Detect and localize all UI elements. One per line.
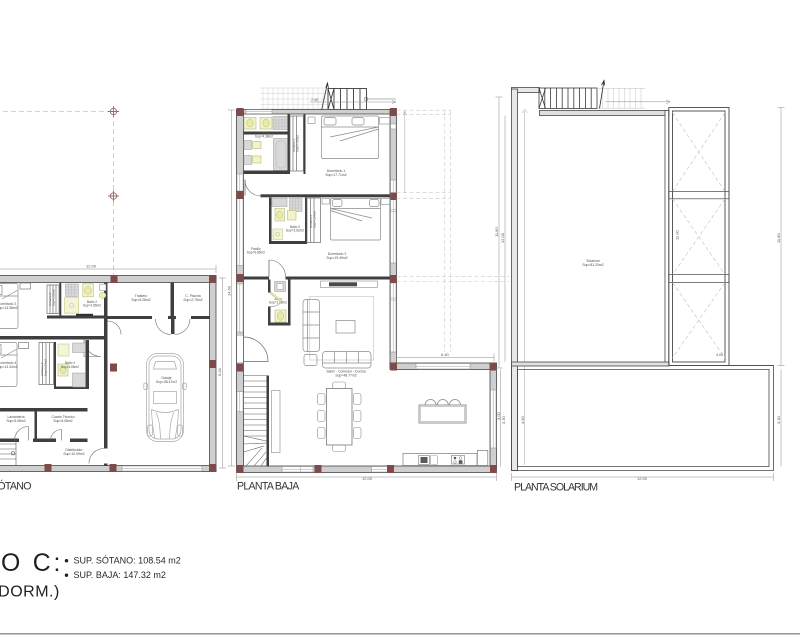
svg-text:SUP. BAJA: 147.32 m2: SUP. BAJA: 147.32 m2: [74, 570, 166, 580]
svg-text:6.40: 6.40: [441, 352, 450, 357]
svg-text:Sup=3.62m2: Sup=3.62m2: [286, 229, 304, 233]
svg-text:PLANTA BAJA: PLANTA BAJA: [237, 481, 300, 493]
svg-text:11.80: 11.80: [494, 227, 499, 237]
svg-text:3.30: 3.30: [501, 415, 506, 424]
svg-text:Sup=2.75m2: Sup=2.75m2: [183, 298, 202, 302]
svg-text:Sup=17.71m2: Sup=17.71m2: [325, 173, 346, 177]
svg-text:14.60: 14.60: [227, 285, 232, 296]
svg-text:Sup=1.59m2: Sup=1.59m2: [296, 135, 300, 152]
svg-text:Sup=48.77m2: Sup=48.77m2: [335, 374, 356, 378]
svg-text:11.80: 11.80: [776, 233, 781, 243]
svg-text:Sup=38.47m2: Sup=38.47m2: [156, 380, 177, 384]
svg-text:Sup=1.03m2: Sup=1.03m2: [269, 301, 287, 305]
svg-text:Sup=19.49m2: Sup=19.49m2: [326, 256, 347, 260]
svg-text:TIPO C:: TIPO C:: [0, 550, 63, 577]
svg-text:11.00: 11.00: [675, 230, 680, 240]
svg-text:Sup=5.08m2: Sup=5.08m2: [53, 419, 72, 423]
svg-text:4.60: 4.60: [520, 415, 525, 424]
svg-text:12.00: 12.00: [362, 476, 373, 481]
svg-text:Sup=5.28m2: Sup=5.28m2: [131, 298, 150, 302]
svg-text:Sup=1.54m2: Sup=1.54m2: [313, 211, 317, 228]
svg-text:Sup=13.38m2: Sup=13.38m2: [0, 306, 18, 310]
svg-text:3.30: 3.30: [776, 415, 781, 424]
svg-text:Sup=1.04m2: Sup=1.04m2: [44, 359, 48, 376]
svg-text:PLANTA SOLARIUM: PLANTA SOLARIUM: [514, 482, 597, 494]
svg-text:12.00: 12.00: [637, 476, 648, 481]
svg-text:(2 DORM.): (2 DORM.): [0, 584, 60, 601]
svg-text:9.04: 9.04: [217, 367, 222, 376]
svg-text:7.40: 7.40: [311, 98, 318, 102]
svg-text:Sup=4.38m2: Sup=4.38m2: [255, 135, 273, 139]
svg-text:Sup=5.08m2: Sup=5.08m2: [6, 419, 25, 423]
svg-text:SUP. SÓTANO: 108.54 m2: SUP. SÓTANO: 108.54 m2: [74, 556, 181, 566]
svg-text:Sup=13.34m2: Sup=13.34m2: [0, 365, 18, 369]
svg-text:Sup=3.56m2: Sup=3.56m2: [83, 304, 101, 308]
svg-text:SÓTANO: SÓTANO: [0, 480, 31, 493]
svg-text:Sup=3.56m2: Sup=3.56m2: [61, 365, 79, 369]
svg-text:Sup=10.09m2: Sup=10.09m2: [63, 452, 84, 456]
svg-text:Sup=6.85m2: Sup=6.85m2: [247, 251, 265, 255]
svg-text:Sup=1.05m2: Sup=1.05m2: [52, 289, 56, 306]
svg-text:Sup=81.20m2: Sup=81.20m2: [582, 263, 603, 267]
svg-text:12.00: 12.00: [500, 232, 505, 243]
svg-text:12.00: 12.00: [86, 264, 97, 269]
svg-text:4.00: 4.00: [716, 353, 723, 357]
